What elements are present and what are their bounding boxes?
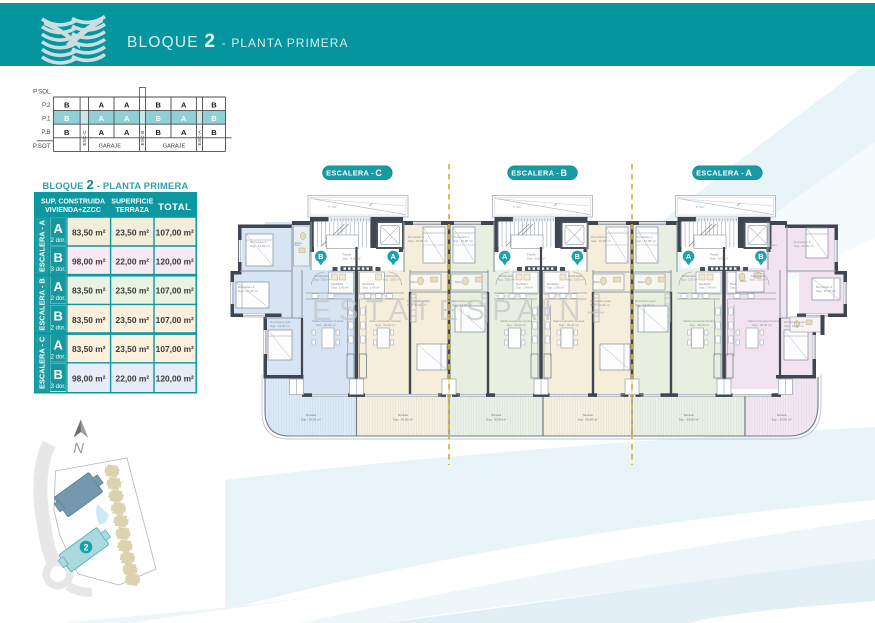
svg-text:A: A	[99, 101, 105, 110]
svg-text:A: A	[124, 101, 130, 110]
svg-text:P. Sol: P. Sol	[329, 205, 337, 209]
svg-text:Paso: Paso	[770, 243, 777, 247]
svg-text:Sup.: 3,00 m²: Sup.: 3,00 m²	[681, 278, 698, 282]
svg-text:3 dor.: 3 dor.	[51, 267, 66, 273]
svg-text:B: B	[156, 101, 162, 110]
svg-text:B: B	[211, 114, 217, 123]
svg-text:Sup.: 1,40 m²: Sup.: 1,40 m²	[699, 286, 716, 290]
svg-text:Baño: Baño	[455, 280, 462, 284]
svg-text:P.SOL: P.SOL	[33, 89, 51, 96]
svg-text:3 dor.: 3 dor.	[51, 384, 66, 390]
svg-text:Sup.: 3,00 m²: Sup.: 3,00 m²	[750, 278, 767, 282]
svg-text:Sup.: 8,00 m²: Sup.: 8,00 m²	[710, 257, 728, 261]
svg-text:Sup.: 30,00 m²: Sup.: 30,00 m²	[393, 418, 413, 422]
svg-text:A: A	[99, 114, 105, 123]
svg-text:Sup.: 10,95 m²: Sup.: 10,95 m²	[591, 239, 611, 243]
svg-text:B: B	[560, 168, 567, 178]
svg-text:Sup.: 10,95 m²: Sup.: 10,95 m²	[453, 239, 473, 243]
svg-text:107,00 m²: 107,00 m²	[156, 344, 194, 354]
svg-text:A: A	[181, 128, 187, 137]
svg-text:A: A	[181, 101, 187, 110]
svg-text:Sup.: 12,00 m²: Sup.: 12,00 m²	[635, 303, 655, 307]
svg-text:Sup.: 30,00 m²: Sup.: 30,00 m²	[679, 418, 699, 422]
svg-text:A: A	[686, 252, 692, 261]
svg-text:Sup.: 10,30 m²: Sup.: 10,30 m²	[816, 289, 836, 293]
svg-text:A: A	[53, 338, 63, 353]
svg-text:Sup.: 3,00 m²: Sup.: 3,00 m²	[567, 278, 584, 282]
svg-text:Sup.: 12,50 m²: Sup.: 12,50 m²	[270, 324, 290, 328]
svg-text:ESC-A: ESC-A	[197, 130, 203, 146]
svg-text:Baño: Baño	[638, 280, 645, 284]
svg-text:Terraza: Terraza	[582, 413, 592, 417]
svg-text:A: A	[745, 168, 752, 178]
svg-text:ESCALERA -: ESCALERA -	[511, 169, 559, 178]
svg-text:Sup.: 3,00 m²: Sup.: 3,00 m²	[498, 278, 515, 282]
svg-text:Sup.: 12,50 m²: Sup.: 12,50 m²	[784, 324, 804, 328]
svg-text:23,50 m²: 23,50 m²	[116, 315, 150, 325]
svg-text:P.1: P.1	[42, 116, 51, 123]
svg-text:2 dor.: 2 dor.	[51, 355, 66, 361]
svg-text:P.2: P.2	[42, 102, 51, 109]
svg-text:A: A	[124, 128, 130, 137]
svg-text:ESC-B: ESC-B	[140, 131, 146, 146]
svg-text:B: B	[211, 128, 217, 137]
svg-text:B: B	[64, 101, 70, 110]
svg-text:SUPERFICIE: SUPERFICIE	[111, 199, 153, 206]
svg-text:Baño: Baño	[295, 241, 302, 245]
svg-text:Sup.: 30,00 m²: Sup.: 30,00 m²	[486, 418, 506, 422]
svg-text:107,00 m²: 107,00 m²	[156, 315, 194, 325]
svg-text:Sup.: 3,00 m²: Sup.: 3,00 m²	[383, 278, 400, 282]
svg-text:83,50 m²: 83,50 m²	[72, 286, 106, 296]
svg-text:Terraza: Terraza	[306, 413, 316, 417]
svg-text:A: A	[53, 279, 63, 294]
svg-text:107,00 m²: 107,00 m²	[156, 286, 194, 296]
svg-text:120,00 m²: 120,00 m²	[156, 373, 194, 383]
svg-text:83,50 m²: 83,50 m²	[72, 344, 106, 354]
svg-text:Baño: Baño	[740, 279, 747, 283]
svg-text:Terraza: Terraza	[776, 413, 786, 417]
svg-text:Terraza: Terraza	[491, 413, 501, 417]
svg-text:Terraza: Terraza	[683, 413, 693, 417]
svg-text:GARAJE: GARAJE	[99, 143, 122, 149]
svg-text:2 dor.: 2 dor.	[51, 296, 66, 302]
svg-text:ESCALERA -: ESCALERA -	[696, 169, 744, 178]
svg-text:B: B	[53, 250, 62, 265]
svg-text:TERRAZA: TERRAZA	[116, 207, 149, 214]
svg-text:B: B	[758, 252, 763, 261]
svg-text:Baño: Baño	[593, 280, 600, 284]
svg-text:Sup.: 3,00 m²: Sup.: 3,00 m²	[314, 278, 331, 282]
svg-text:Sup.: 8,00 m²: Sup.: 8,00 m²	[343, 257, 361, 261]
svg-text:ESTATESPAIN–: ESTATESPAIN–	[312, 295, 612, 327]
svg-text:Sup.: 1,40 m²: Sup.: 1,40 m²	[547, 286, 564, 290]
svg-text:A: A	[99, 128, 105, 137]
svg-text:Sup.: 10,30 m²: Sup.: 10,30 m²	[238, 289, 258, 293]
svg-text:2: 2	[84, 542, 89, 552]
svg-text:ESCALERA -: ESCALERA -	[326, 169, 374, 178]
svg-text:Sup.: 36,00 m²: Sup.: 36,00 m²	[301, 418, 321, 422]
svg-text:A: A	[53, 221, 63, 236]
svg-text:98,00 m²: 98,00 m²	[72, 373, 106, 383]
svg-text:ESCALERA - B: ESCALERA - B	[38, 278, 47, 330]
svg-text:23,50 m²: 23,50 m²	[116, 344, 150, 354]
svg-text:TOTAL: TOTAL	[158, 202, 191, 213]
svg-text:B: B	[64, 114, 70, 123]
svg-text:Sup.: 10,95 m²: Sup.: 10,95 m²	[408, 239, 428, 243]
svg-text:Sup.: 10,95 m²: Sup.: 10,95 m²	[636, 239, 656, 243]
svg-text:VIVIENDA+ZZCC: VIVIENDA+ZZCC	[45, 207, 101, 214]
svg-text:22,00 m²: 22,00 m²	[116, 257, 150, 267]
svg-text:Sup.: 8,00 m²: Sup.: 8,00 m²	[527, 257, 545, 261]
svg-text:SUP. CONSTRUIDA: SUP. CONSTRUIDA	[41, 199, 105, 206]
svg-text:98,00 m²: 98,00 m²	[72, 257, 106, 267]
svg-text:23,50 m²: 23,50 m²	[116, 286, 150, 296]
svg-text:P.SOT: P.SOT	[33, 143, 51, 150]
svg-text:Sup.: 33,00 m²: Sup.: 33,00 m²	[772, 418, 792, 422]
svg-text:Sup.: 1,40 m²: Sup.: 1,40 m²	[332, 286, 349, 290]
svg-text:B: B	[211, 101, 217, 110]
svg-text:Sup.: 30,20 m²: Sup.: 30,20 m²	[690, 323, 710, 327]
svg-text:Sup.: 10,50 m²: Sup.: 10,50 m²	[250, 244, 270, 248]
svg-text:Terraza: Terraza	[398, 413, 408, 417]
svg-text:C: C	[375, 168, 382, 178]
svg-text:107,00 m²: 107,00 m²	[156, 227, 194, 237]
svg-text:22,00 m²: 22,00 m²	[116, 373, 150, 383]
svg-text:B: B	[64, 128, 70, 137]
svg-text:B: B	[156, 128, 162, 137]
svg-text:2 dor.: 2 dor.	[51, 325, 66, 331]
svg-text:ESCALERA - C: ESCALERA - C	[38, 336, 47, 389]
svg-text:P.B: P.B	[41, 129, 50, 136]
svg-text:Sup.: 1,40 m²: Sup.: 1,40 m²	[516, 286, 533, 290]
svg-text:83,50 m²: 83,50 m²	[72, 315, 106, 325]
svg-text:ESC-C: ESC-C	[82, 130, 88, 146]
svg-text:BLOQUE 2 - PLANTA PRIMERA: BLOQUE 2 - PLANTA PRIMERA	[42, 177, 188, 192]
svg-text:P. Sol: P. Sol	[513, 205, 521, 209]
svg-text:Baño: Baño	[410, 280, 417, 284]
svg-text:A: A	[502, 252, 508, 261]
svg-text:Sup.: 30,40 m²: Sup.: 30,40 m²	[752, 323, 772, 327]
svg-text:Sup.: 1,40 m²: Sup.: 1,40 m²	[363, 286, 380, 290]
svg-text:2 dor.: 2 dor.	[51, 238, 66, 244]
svg-text:B: B	[53, 308, 62, 323]
svg-text:GARAJE: GARAJE	[163, 143, 186, 149]
svg-text:B: B	[318, 252, 323, 261]
svg-text:A: A	[391, 252, 397, 261]
svg-text:83,50 m²: 83,50 m²	[72, 227, 106, 237]
svg-text:23,50 m²: 23,50 m²	[116, 227, 150, 237]
svg-text:A: A	[181, 114, 187, 123]
svg-text:A: A	[124, 114, 130, 123]
svg-text:Sup.: 10,50 m²: Sup.: 10,50 m²	[794, 244, 814, 248]
svg-text:B: B	[575, 252, 580, 261]
svg-text:ESCALERA - A: ESCALERA - A	[38, 219, 47, 272]
svg-text:Sup.: 30,00 m²: Sup.: 30,00 m²	[578, 418, 598, 422]
svg-text:B: B	[53, 367, 62, 382]
svg-text:B: B	[156, 114, 162, 123]
svg-text:120,00 m²: 120,00 m²	[156, 257, 194, 267]
svg-text:P. Sol: P. Sol	[696, 205, 704, 209]
